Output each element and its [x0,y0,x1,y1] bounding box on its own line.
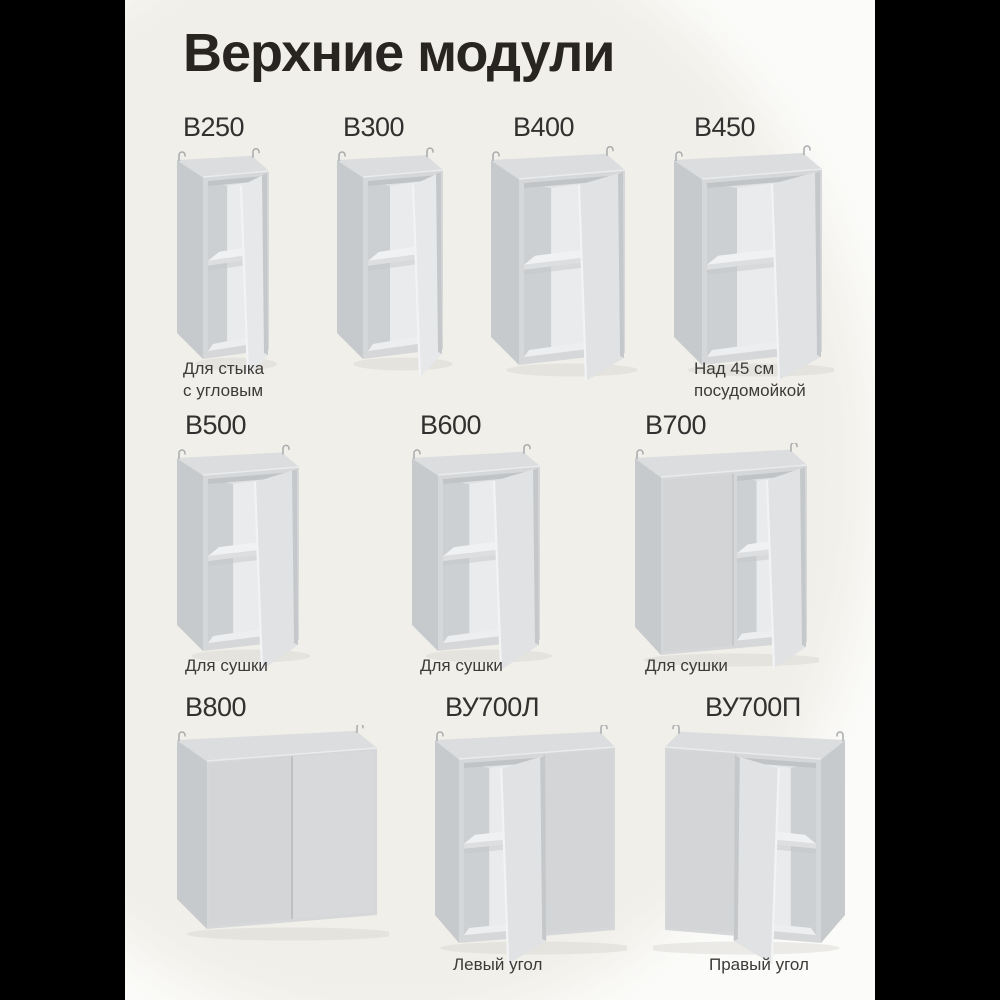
module-v700: В700 Для сушки [631,410,871,702]
module-code: В500 [185,410,413,440]
module-v800: В800 [173,692,413,950]
module-v450: В450 Над 45 см посудомойкой [670,112,875,414]
module-caption: Левый угол [453,954,542,976]
module-vu700l: ВУ700Л Левый угол [431,692,671,992]
cabinet-illustration [653,725,875,992]
module-caption: Для сушки [645,655,728,677]
pillarbox-right [875,0,1000,1000]
module-vu700p: ВУ700П Правый угол [653,692,875,992]
pillarbox-left [0,0,125,1000]
module-code: В700 [645,410,871,440]
module-v600: В600 Для сушки [408,410,648,702]
catalog-content: Верхние модули В250 Для стыка с угловым … [125,0,875,1000]
cabinet-illustration [431,725,671,992]
catalog-page: Верхние модули В250 Для стыка с угловым … [0,0,1000,1000]
module-caption: Для сушки [185,655,268,677]
module-code: В600 [420,410,648,440]
module-caption: Над 45 см посудомойкой [694,358,806,402]
module-v500: В500 Для сушки [173,410,413,702]
module-caption: Для стыка с угловым [183,358,264,402]
cabinet-illustration [173,725,413,950]
page-title: Верхние модули [183,22,614,84]
module-caption: Для сушки [420,655,503,677]
module-code: В450 [694,112,875,142]
module-caption: Правый угол [709,954,809,976]
